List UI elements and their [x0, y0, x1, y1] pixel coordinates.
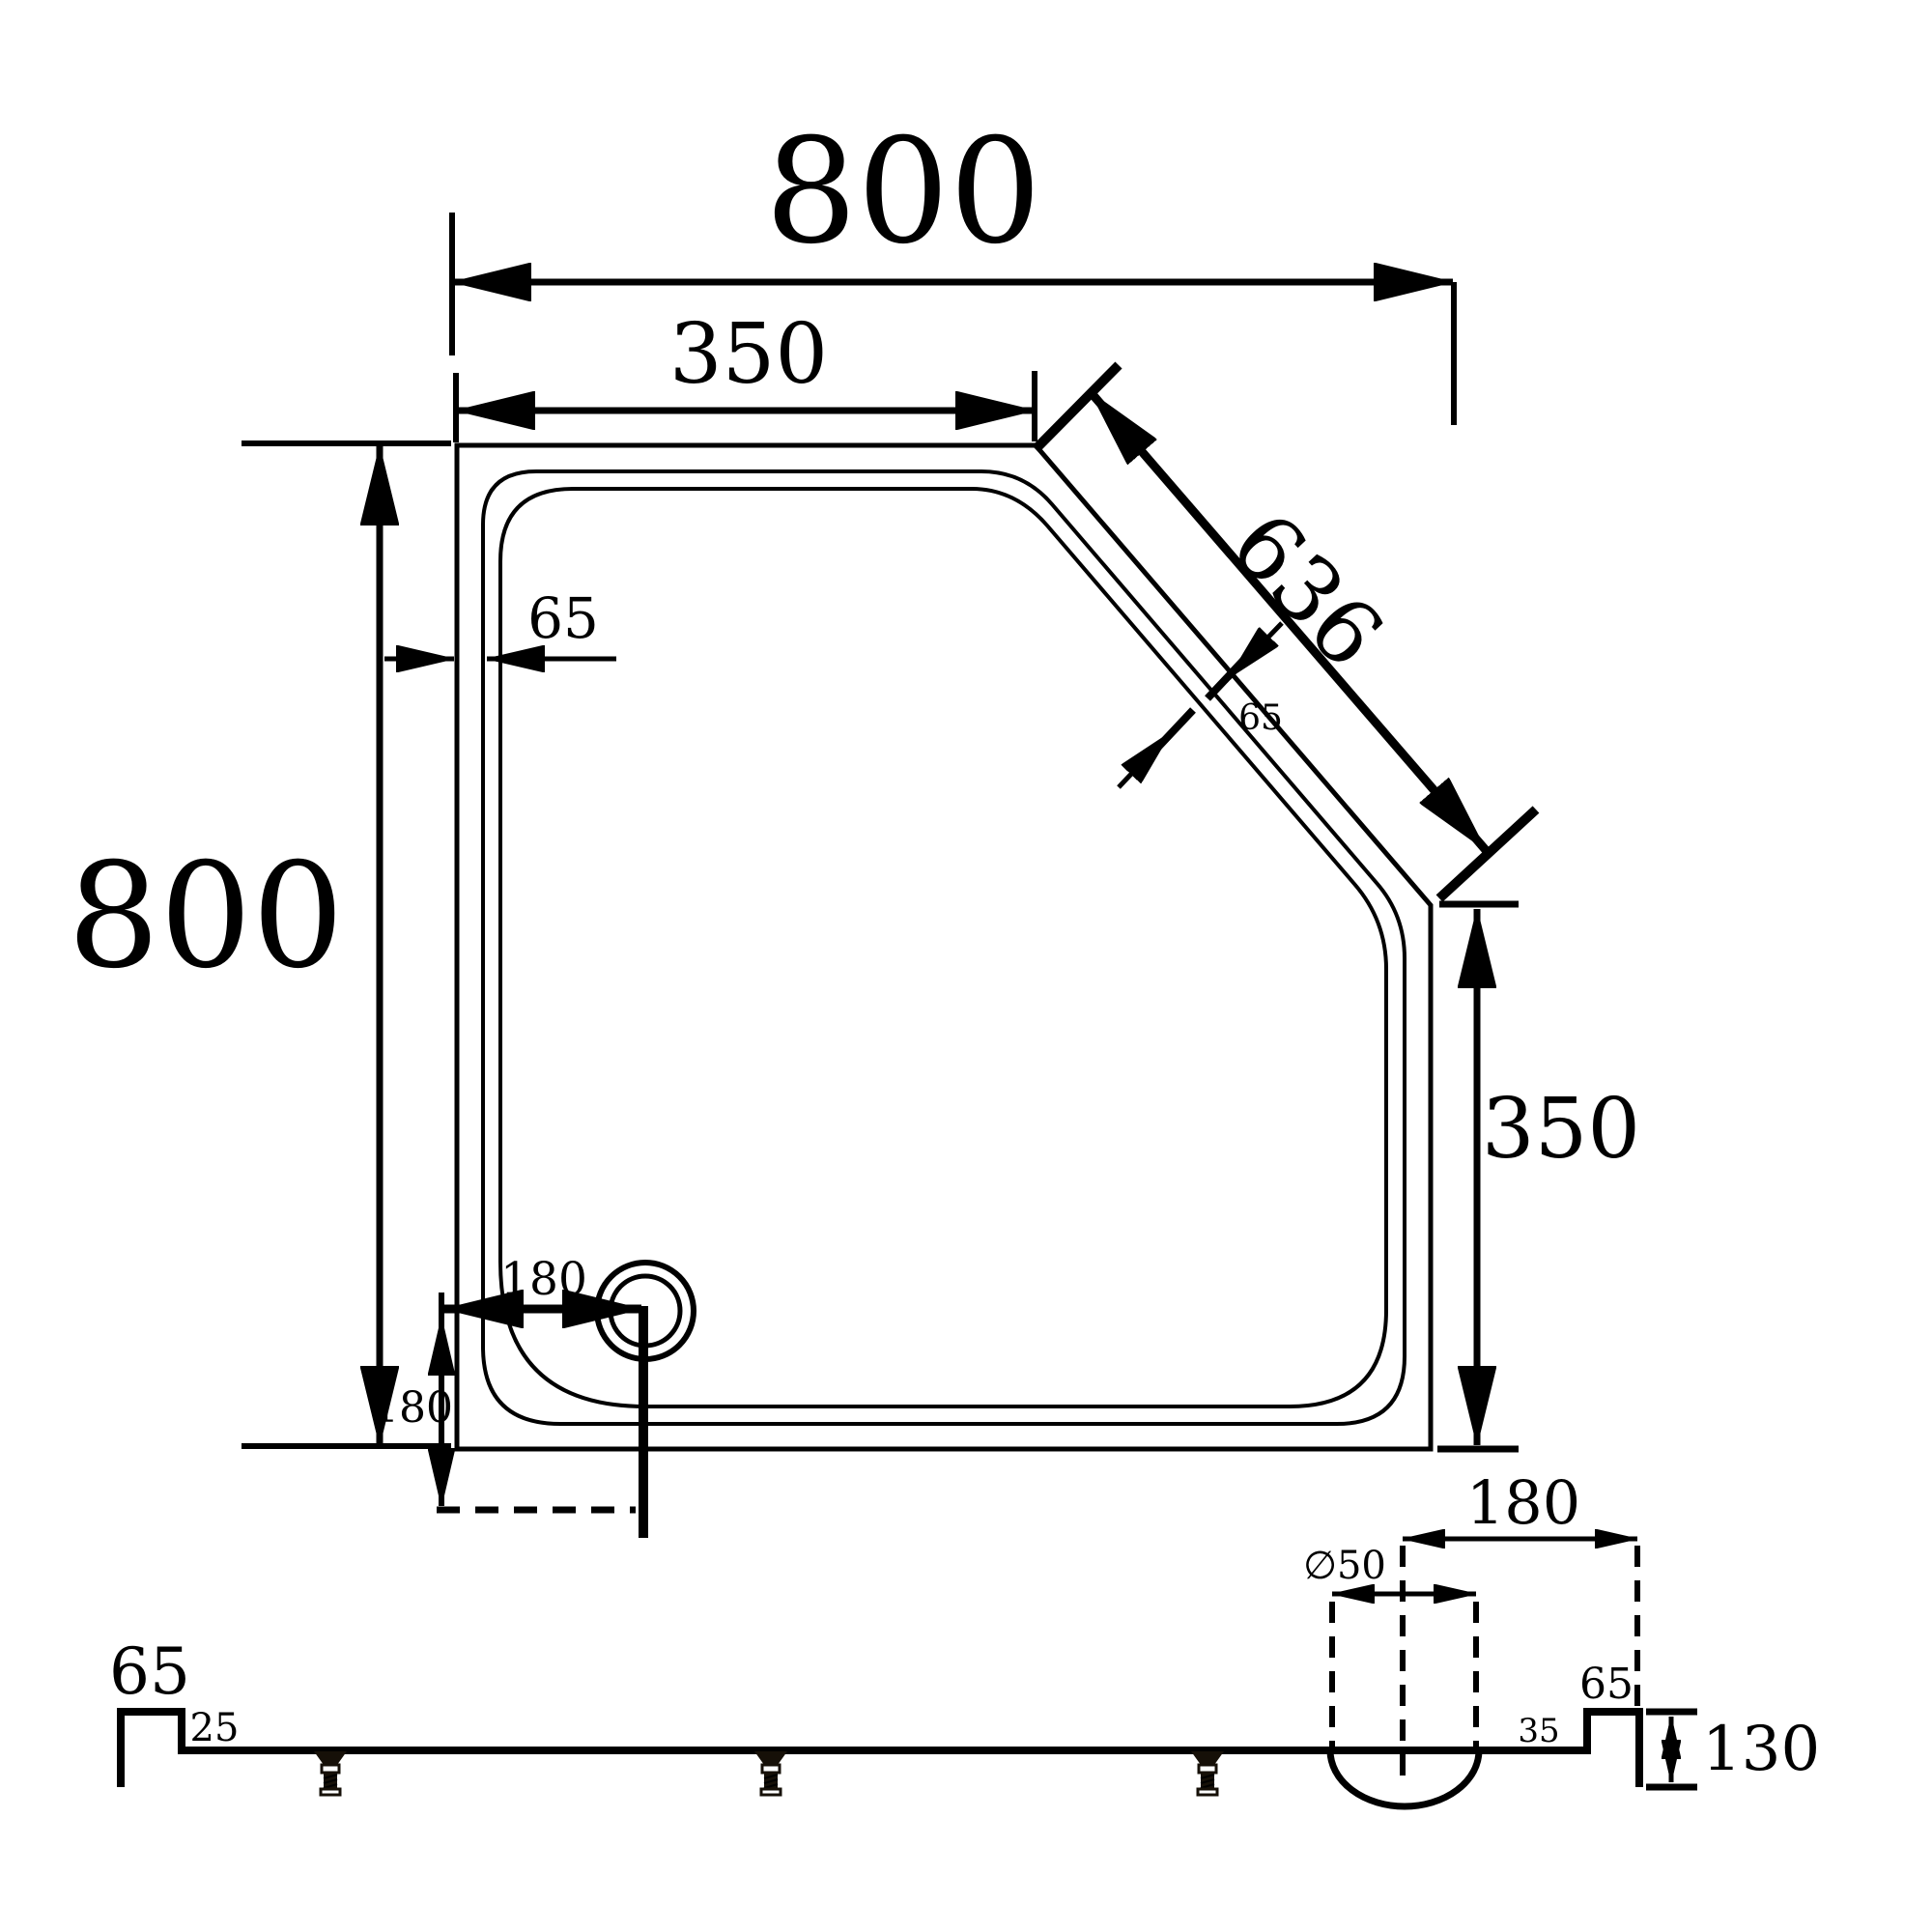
dim-right-ledge-label: 35: [1518, 1712, 1559, 1750]
dim-drain-to-edge: 180: [1403, 1467, 1637, 1539]
dim-overall-height: 800: [68, 443, 451, 1446]
section-profile: [121, 1712, 1639, 1787]
plan-view: 800 350 800 636 65: [68, 108, 1640, 1538]
dim-drain-offset-y: 180: [372, 1318, 636, 1510]
corner-tick: [1439, 810, 1536, 898]
drawing-canvas: 800 350 800 636 65: [0, 0, 1932, 1932]
dim-right-upstand-label: 65: [1579, 1660, 1634, 1709]
dim-tray-height-label: 130: [1702, 1714, 1820, 1785]
adjustable-foot: [314, 1751, 347, 1795]
dim-arrow: [1119, 732, 1171, 787]
dim-left-upstand-label: 65: [109, 1634, 190, 1709]
dim-overall-width: 800: [452, 108, 1454, 425]
dim-tray-height: 130: [1646, 1712, 1820, 1787]
adjustable-foot: [1191, 1751, 1224, 1795]
tray-rim-inner-line: [500, 489, 1386, 1406]
dim-top-edge-label: 350: [669, 306, 828, 403]
shower-tray-technical-drawing: 800 350 800 636 65: [0, 0, 1932, 1932]
dim-drain-offset-y-label: 180: [372, 1383, 453, 1433]
dim-left-ledge-label: 25: [190, 1706, 240, 1750]
dim-overall-width-label: 800: [765, 108, 1041, 276]
dim-right-edge-label: 350: [1482, 1081, 1640, 1178]
dim-drain-to-edge-label: 180: [1466, 1467, 1580, 1538]
dim-rim-width-diagonal-label: 65: [1238, 698, 1283, 738]
dim-diagonal: 636: [1091, 392, 1536, 898]
dim-drain-offset-x-label: 180: [500, 1253, 587, 1306]
section-view: 65 25 ∅50 180 35 65 130: [109, 1467, 1820, 1806]
dim-drain-diameter: ∅50: [1303, 1544, 1476, 1594]
dim-overall-height-label: 800: [68, 833, 344, 1001]
dim-right-edge: 350: [1437, 904, 1640, 1449]
dim-arrow: [1229, 623, 1282, 678]
adjustable-foot: [754, 1751, 787, 1795]
dim-top-edge: 350: [456, 306, 1119, 449]
dim-drain-diameter-label: ∅50: [1303, 1544, 1386, 1588]
dim-rim-width-label: 65: [527, 585, 599, 651]
